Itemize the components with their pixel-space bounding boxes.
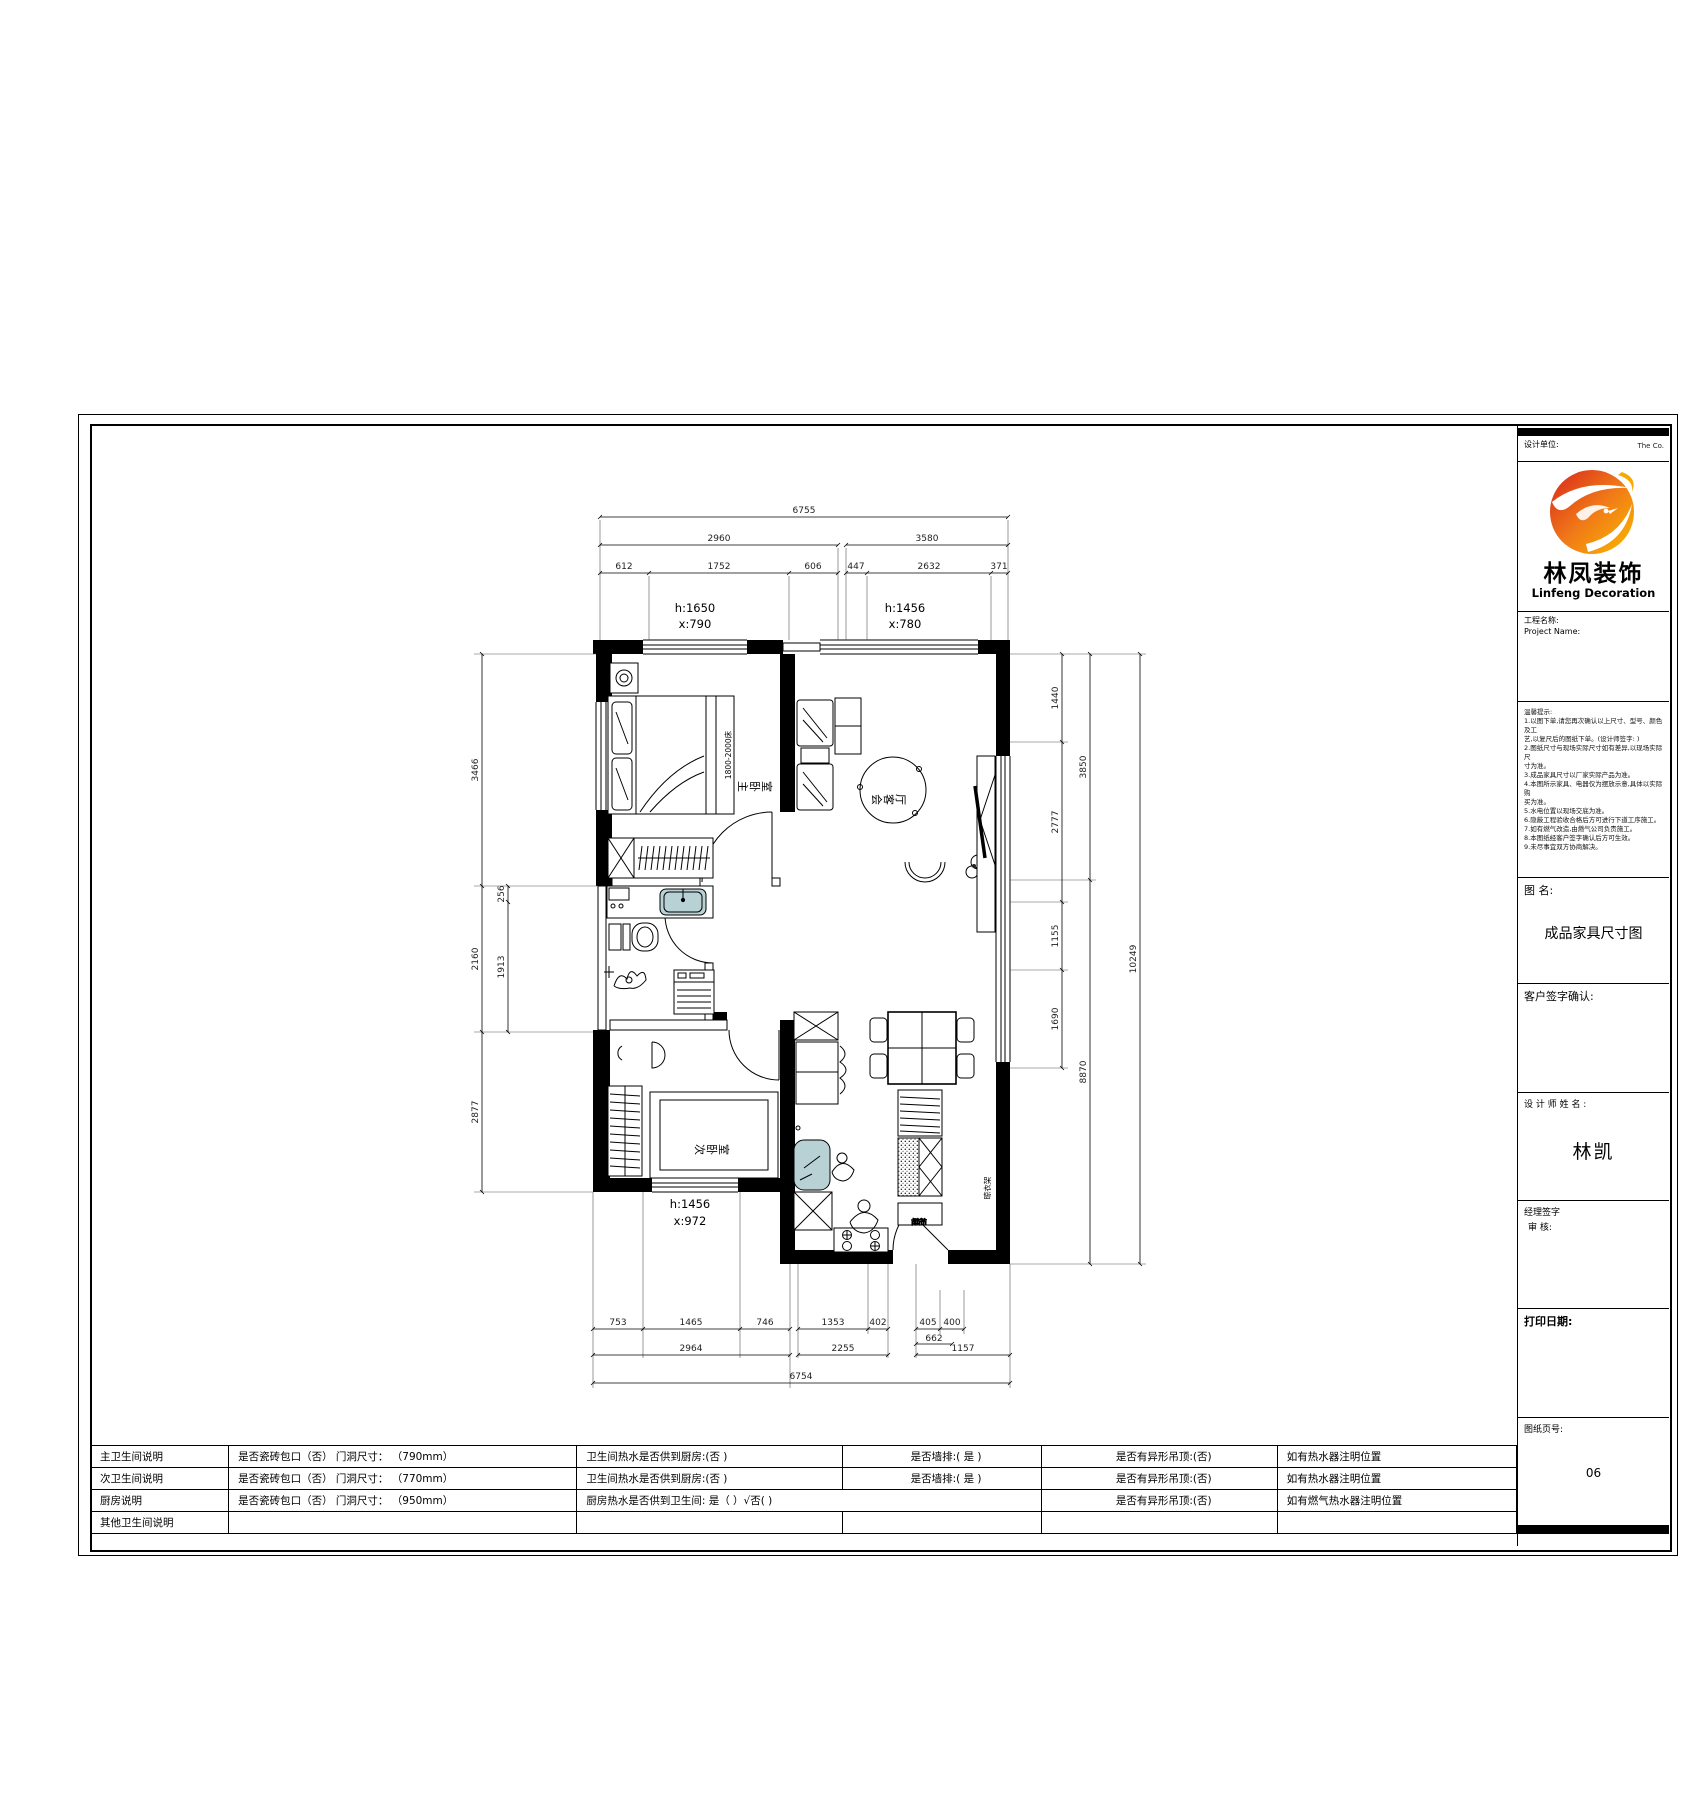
cell [1277,1512,1516,1534]
project-name-label-en: Project Name: [1518,626,1669,636]
cabinet-x [919,1138,942,1196]
title-block: 设计单位: The Co. 林凤装饰 Linfeng Decoration 工程… [1517,426,1669,1546]
notes-line: 4.本图所示家具、电器仅为摆放示意,具体以实际购 [1524,780,1665,798]
drawing-name-value: 成品家具尺寸图 [1518,923,1669,943]
table-row: 厨房说明 是否瓷砖包口（否） 门洞尺寸： （950mm） 厨房热水是否供到卫生间… [91,1490,1517,1512]
brand-name-en: Linfeng Decoration [1518,586,1669,600]
cell [842,1512,1041,1534]
wardrobe-second [608,1086,642,1176]
page-number-value: 06 [1518,1466,1669,1480]
toilet [609,923,658,951]
room-label-living: 会客厅 [870,794,907,806]
dim-value: 6754 [790,1372,813,1382]
dim-value: 753 [609,1318,626,1328]
double-bed [608,696,734,814]
cell: 厨房热水是否供到卫生间: 是（ ）√否( ) [577,1490,1041,1512]
shoe-cabinet: 鞋柜 [898,1203,942,1226]
sofa-set [797,698,861,810]
dim-value: 8870 [1079,1060,1089,1083]
table-row: 次卫生间说明 是否瓷砖包口（否） 门洞尺寸： （770mm） 卫生间热水是否供到… [91,1468,1517,1490]
room-label-second: 次卧室 [693,1144,731,1156]
window-right [996,756,1010,1062]
table-row: 其他卫生间说明 [91,1512,1517,1534]
manager-sign-label: 经理签字 [1518,1201,1669,1218]
bed-size-label: 1800-2000床 [723,730,733,779]
cell [577,1512,842,1534]
dim-value: 400 [943,1318,960,1328]
master-bedroom-furniture [608,663,734,878]
notes-line: 2.图纸尺寸与现场实际尺寸如有差异,以现场实际尺 [1524,744,1665,762]
page-number-section: 图纸页号: 06 [1518,1418,1669,1526]
window-label-h: h:1650 [675,601,715,615]
person-figure [832,1153,854,1181]
cell: 是否有异形吊顶:(否) [1041,1490,1277,1512]
dim-value: 1690 [1051,1007,1061,1030]
notes-section: 温馨提示: 1.以图下单,请您再次确认以上尺寸、型号、颜色及工 艺,以复尺后的图… [1518,702,1669,878]
armchair [905,862,945,882]
stove [834,1228,888,1252]
door-bathroom [665,915,713,963]
dim-value: 2960 [708,534,731,544]
table-row: 主卫生间说明 是否瓷砖包口（否） 门洞尺寸： （790mm） 卫生间热水是否供到… [91,1446,1517,1468]
dim-value: 1157 [952,1344,975,1354]
print-date-section: 打印日期: [1518,1309,1669,1418]
window-label-x: x:780 [889,617,922,631]
dim-value: 1465 [680,1318,703,1328]
window-top-left [643,640,747,654]
title-block-top-bar [1518,428,1669,436]
dim-value: 256 [497,885,507,902]
bath-sink [660,889,706,915]
room-label-master: 主卧室 [736,781,774,793]
designer-name: 林凯 [1518,1137,1669,1164]
dim-value: 1913 [497,956,507,979]
cell: 是否墙排:( 是 ) [842,1468,1041,1490]
cell: 是否瓷砖包口（否） 门洞尺寸： （950mm） [229,1490,577,1512]
notes-line: 5.水电位置以现场交底为准。 [1524,807,1665,816]
dim-value: 6755 [793,506,816,516]
row-label: 厨房说明 [91,1490,229,1512]
notes-line: 8.本图纸经客户签字确认后方可生效。 [1524,834,1665,843]
dim-value: 606 [804,562,821,572]
notes-title: 温馨提示: [1524,708,1665,717]
cabinet-dotted [898,1138,919,1196]
floor-plan: 鞋柜 [460,500,1170,1400]
window-label-h: h:1456 [885,601,925,615]
shower-head [604,966,646,989]
dim-value: 3580 [916,534,939,544]
dim-value: 1440 [1051,686,1061,709]
kitchen-counter [796,1042,846,1104]
row-label: 主卫生间说明 [91,1446,229,1468]
window-bottom [652,1178,738,1192]
page-number-label: 图纸页号: [1518,1418,1669,1435]
dim-value: 405 [919,1318,936,1328]
window-top-right [820,640,978,654]
window-label-h: h:1456 [670,1197,710,1211]
notes-line: 7.如有燃气改造,由燃气公司负责施工。 [1524,825,1665,834]
notes-line: 9.未尽事宜双方协商解决。 [1524,843,1665,852]
dining-table [870,1012,974,1084]
dim-value: 371 [990,562,1007,572]
brand-name-cn: 林凤装饰 [1518,562,1669,586]
notes-line: 买为准。 [1524,798,1665,807]
desk-chair [618,1042,665,1068]
cell: 如有燃气热水器注明位置 [1277,1490,1516,1512]
row-label: 其他卫生间说明 [91,1512,229,1534]
cell: 如有热水器注明位置 [1277,1468,1516,1490]
living-room-furniture [797,698,996,932]
designer-section: 设 计 师 姓 名 : 林凯 [1518,1093,1669,1201]
cell: 卫生间热水是否供到厨房:(否 ) [577,1446,842,1468]
shelf-unit [898,1090,942,1136]
dim-value: 3466 [471,758,481,781]
linfeng-logo-icon [1518,462,1667,558]
title-block-bottom-bar [1518,1526,1669,1534]
drawing-name-label: 图 名: [1518,878,1669,898]
window-label-x: x:972 [674,1214,707,1228]
dim-value: 2160 [471,947,481,970]
dim-value: 662 [925,1334,942,1344]
second-bedroom-furniture [608,1042,778,1178]
review-label: 审 核: [1518,1218,1669,1233]
dim-value: 3850 [1079,755,1089,778]
dim-value: 402 [869,1318,886,1328]
shoe-cabinet-label: 鞋柜 [911,1218,929,1226]
design-unit-value: The Co. [1637,442,1664,450]
dim-value: 2255 [832,1344,855,1354]
door-second-bedroom [729,1030,779,1080]
dim-value: 2632 [918,562,941,572]
nightstand [610,663,638,693]
logo-section: 林凤装饰 Linfeng Decoration [1518,462,1669,612]
kitchen-base-cabinet [794,1192,832,1230]
tv-cabinet [975,756,996,932]
project-name-label-cn: 工程名称: [1518,612,1669,626]
kitchen-dining-furniture: 鞋柜 [794,1012,974,1252]
notes-line: 寸为准。 [1524,762,1665,771]
dim-value: 2964 [680,1344,703,1354]
drawing-name-section: 图 名: 成品家具尺寸图 [1518,878,1669,984]
spec-table: 主卫生间说明 是否瓷砖包口（否） 门洞尺寸： （790mm） 卫生间热水是否供到… [90,1445,1517,1534]
manager-sign-section: 经理签字 审 核: [1518,1201,1669,1309]
dim-value: 2877 [471,1101,481,1124]
dim-value: 447 [847,562,864,572]
designer-label: 设 计 师 姓 名 : [1518,1093,1669,1110]
notes-line: 1.以图下单,请您再次确认以上尺寸、型号、颜色及工 [1524,717,1665,735]
dim-value: 1752 [708,562,731,572]
cell: 是否瓷砖包口（否） 门洞尺寸： （790mm） [229,1446,577,1468]
single-bed [650,1092,778,1178]
customer-sign-label: 客户签字确认: [1518,984,1669,1004]
dim-value: 612 [615,562,632,572]
notes-line: 6.隐蔽工程验收合格后方可进行下道工序施工。 [1524,816,1665,825]
round-table [858,757,927,823]
cell [1041,1512,1277,1534]
bathroom-fixtures [604,886,714,1014]
print-date-label: 打印日期: [1518,1309,1669,1329]
cell: 是否瓷砖包口（否） 门洞尺寸： （770mm） [229,1468,577,1490]
dim-value: 2777 [1051,811,1061,834]
cell: 是否有异形吊顶:(否) [1041,1446,1277,1468]
cell: 是否有异形吊顶:(否) [1041,1468,1277,1490]
project-name-section: 工程名称: Project Name: [1518,612,1669,702]
dim-value: 10249 [1129,944,1139,973]
notes-line: 艺,以复尺后的图纸下单。(设计师签字: ) [1524,735,1665,744]
dim-value: 746 [756,1318,773,1328]
cell: 卫生间热水是否供到厨房:(否 ) [577,1468,842,1490]
cell: 如有热水器注明位置 [1277,1446,1516,1468]
notes-line: 3.成品家具尺寸以厂家实际产品为准。 [1524,771,1665,780]
kitchen-sink [794,1126,830,1190]
row-label: 次卫生间说明 [91,1468,229,1490]
fridge [794,1012,838,1040]
window-label-x: x:790 [679,617,712,631]
rack-label: 晾衣架 [982,1176,992,1199]
dim-value: 1353 [822,1318,845,1328]
cell: 是否墙排:( 是 ) [842,1446,1041,1468]
design-unit-row: 设计单位: The Co. [1518,436,1669,462]
cell [229,1512,577,1534]
dim-value: 1155 [1051,925,1061,948]
customer-sign-section: 客户签字确认: [1518,984,1669,1093]
wardrobe-master [608,838,713,878]
washing-machine [674,970,714,1014]
